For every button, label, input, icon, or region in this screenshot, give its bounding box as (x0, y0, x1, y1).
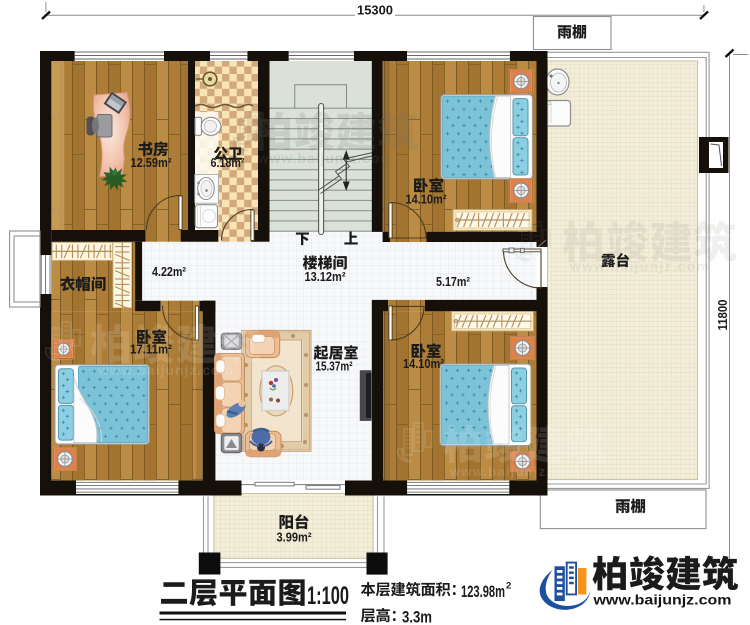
svg-text:5.17m²: 5.17m² (436, 275, 470, 289)
svg-text:123.98m: 123.98m (461, 582, 505, 601)
svg-text:14.10m²: 14.10m² (403, 357, 444, 371)
svg-text:www.baijunjz.com: www.baijunjz.com (97, 363, 234, 378)
svg-text:www.baijunjz.com: www.baijunjz.com (449, 464, 581, 479)
svg-text:14.10m²: 14.10m² (406, 193, 447, 207)
svg-text:3.99m²: 3.99m² (277, 531, 312, 545)
svg-text:www.baijunjz.com: www.baijunjz.com (592, 593, 731, 608)
svg-text:11800: 11800 (716, 299, 730, 330)
svg-text:13.12m²: 13.12m² (305, 270, 346, 284)
svg-text:3.3m: 3.3m (402, 608, 432, 625)
svg-text:4.22m²: 4.22m² (152, 265, 186, 279)
svg-text:15300: 15300 (357, 4, 393, 18)
svg-text:15.37m²: 15.37m² (316, 360, 353, 374)
svg-text:www.baijunjz.com: www.baijunjz.com (257, 151, 394, 166)
svg-text:www.baijunjz.com: www.baijunjz.com (569, 258, 710, 274)
svg-text:17.11m²: 17.11m² (130, 343, 172, 357)
svg-text:12.59m²: 12.59m² (131, 156, 172, 170)
svg-text:1:100: 1:100 (307, 582, 349, 610)
svg-text:2: 2 (506, 581, 511, 592)
svg-text:6.18m²: 6.18m² (211, 156, 245, 170)
